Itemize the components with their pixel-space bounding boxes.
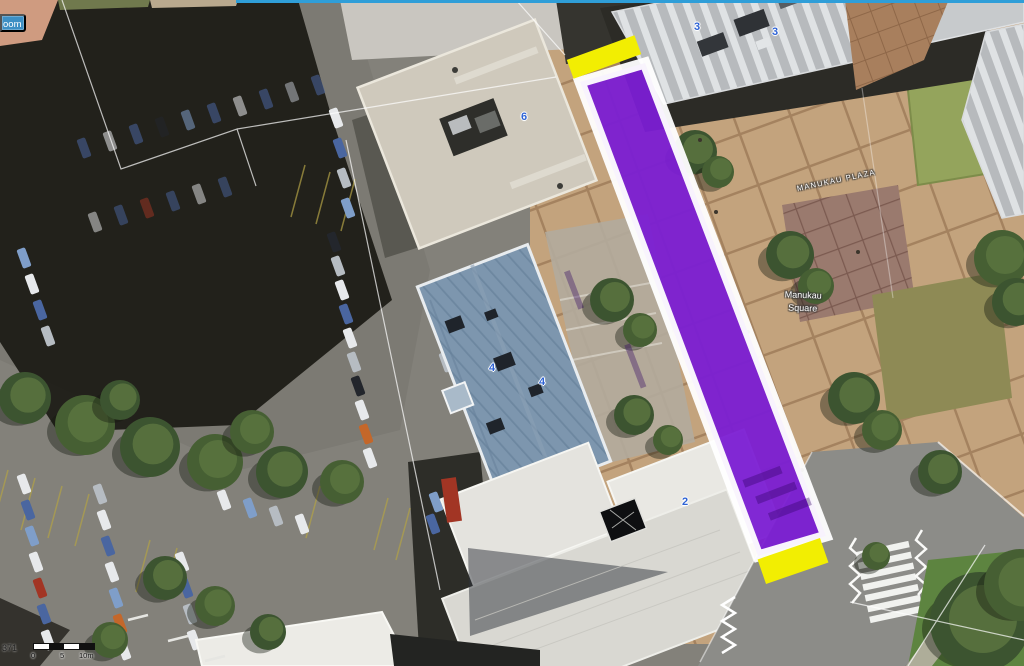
annotation-2: 2 (682, 496, 688, 508)
annotation-4-east: 4 (539, 376, 545, 388)
annotation-6: 6 (521, 111, 527, 123)
scale-bar: 0 5 10m (33, 643, 95, 659)
zoom-button[interactable]: oom (0, 14, 26, 32)
annotation-3-west: 3 (694, 21, 700, 33)
place-label-manukau-square: Manukau Square (773, 288, 834, 315)
scale-tick-10m: 10m (79, 651, 94, 660)
scale-tick-0: 0 (31, 651, 35, 660)
place-label-manukau-square-line2: Square (773, 301, 833, 316)
annotation-3-east: 3 (772, 26, 778, 38)
scale-tick-5: 5 (60, 651, 64, 660)
aerial-map-viewport[interactable]: oom 371 0 5 10m MANUKAU PLAZA Manukau Sq… (0, 0, 1024, 666)
scale-bar-segments (33, 643, 95, 650)
top-border-line (236, 0, 1024, 3)
scale-ratio: 371 (2, 643, 17, 653)
aerial-photo (0, 0, 1024, 666)
annotation-4-west: 4 (489, 362, 495, 374)
